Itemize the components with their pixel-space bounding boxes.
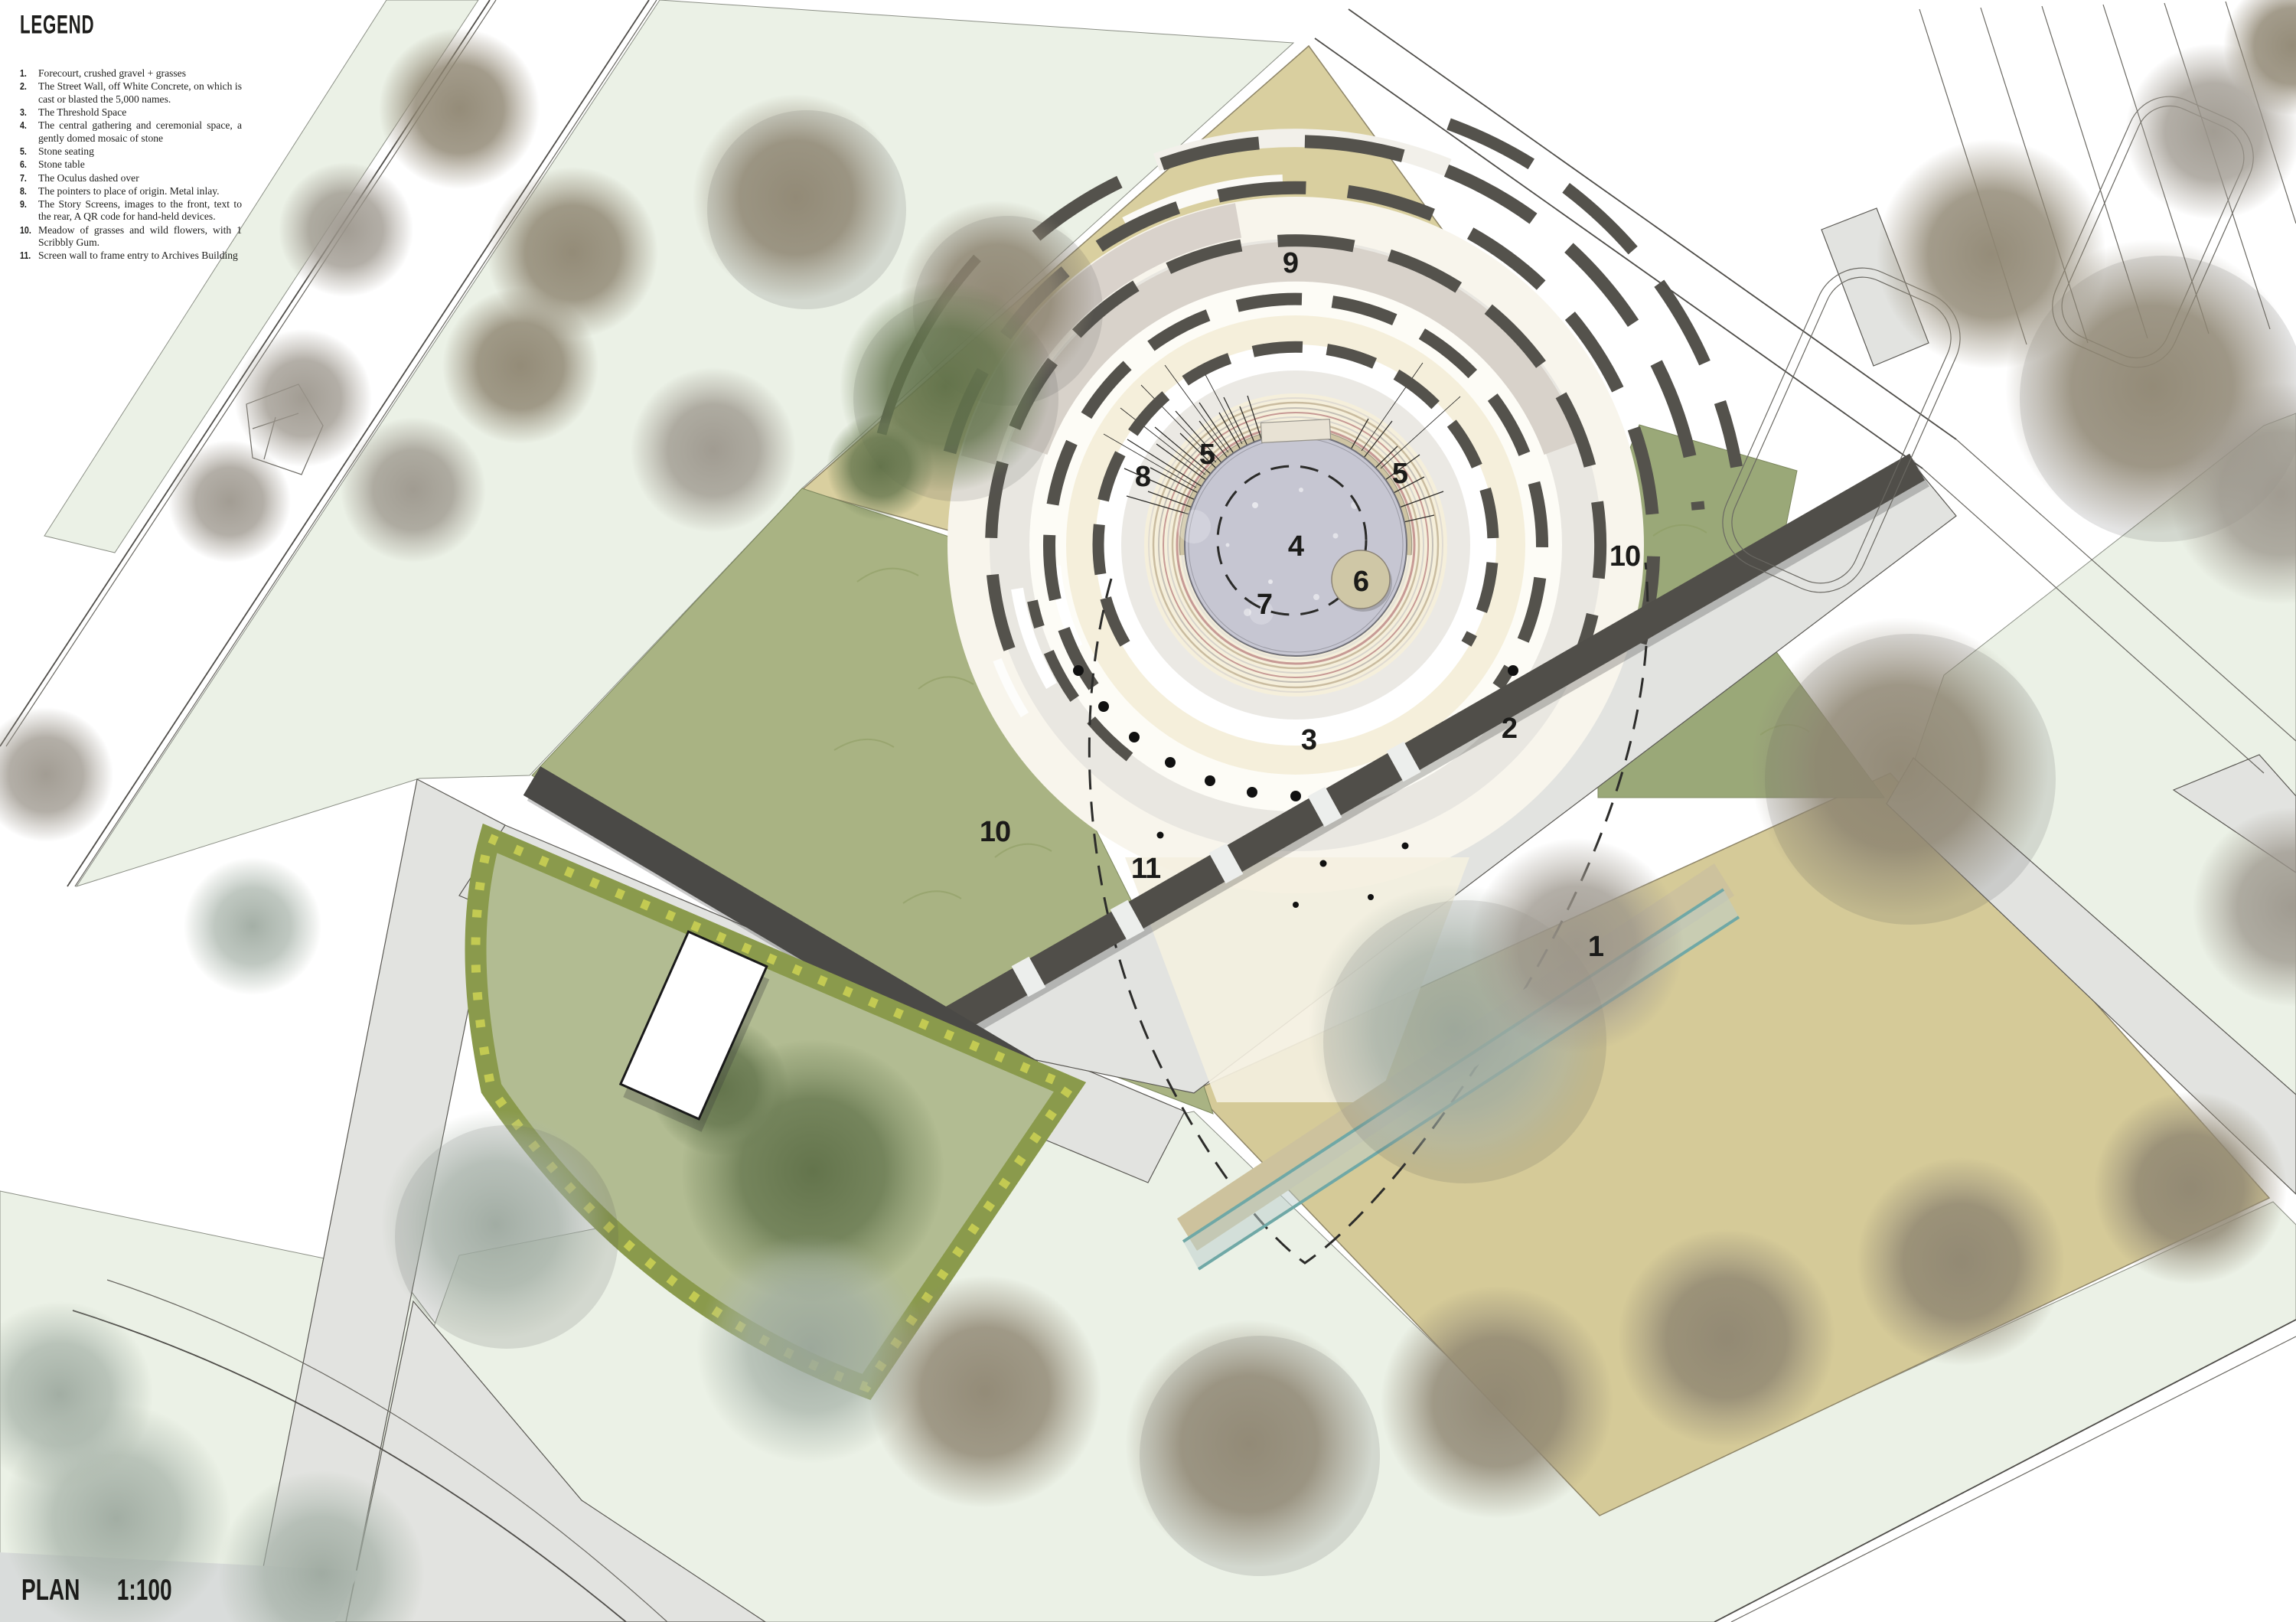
callout-7: 7	[1257, 589, 1272, 621]
callout-6: 6	[1353, 566, 1368, 598]
tree	[341, 417, 486, 563]
legend-title: LEGEND	[20, 9, 94, 40]
callout-4: 4	[1288, 530, 1304, 563]
plan-drawing: 9 8 5 5 4 6 7 3 2 10 11 1 10 LEGEND 1.Fo…	[0, 0, 2296, 1622]
tree	[1381, 1286, 1613, 1519]
threshold-top-block	[1261, 419, 1330, 443]
tree	[184, 857, 321, 995]
tree	[827, 413, 934, 521]
tree	[1750, 618, 2049, 916]
tree	[1877, 139, 2106, 369]
tree	[1618, 1229, 1835, 1447]
legend-panel: LEGEND 1.Forecourt, crushed gravel + gra…	[20, 9, 242, 377]
callout-10-left: 10	[980, 816, 1010, 848]
tree	[168, 440, 291, 563]
legend-list: 1.Forecourt, crushed gravel + grasses 2.…	[20, 67, 242, 263]
legend: LEGEND 1.Forecourt, crushed gravel + gra…	[20, 9, 242, 263]
legend-item: 4.The central gathering and ceremonial s…	[20, 119, 242, 145]
tree	[0, 707, 113, 842]
legend-item: 9.The Story Screens, images to the front…	[20, 198, 242, 224]
tree	[442, 288, 598, 444]
callout-5-left: 5	[1199, 439, 1215, 471]
tree	[631, 367, 796, 533]
tree	[279, 162, 413, 297]
callout-9: 9	[1283, 247, 1298, 279]
legend-item: 11.Screen wall to frame entry to Archive…	[20, 250, 242, 262]
legend-item: 6.Stone table	[20, 158, 242, 171]
site-plan-sheet: 9 8 5 5 4 6 7 3 2 10 11 1 10 LEGEND 1.Fo…	[0, 0, 2296, 1622]
legend-item: 8.The pointers to place of origin. Metal…	[20, 185, 242, 197]
legend-item: 10.Meadow of grasses and wild flowers, w…	[20, 224, 242, 250]
callout-10-right: 10	[1609, 540, 1640, 573]
legend-item: 2.The Street Wall, off White Concrete, o…	[20, 80, 242, 106]
tree	[381, 1110, 611, 1340]
tree	[1469, 838, 1684, 1053]
tree	[379, 28, 540, 189]
callout-3: 3	[1301, 724, 1316, 756]
plan-scale: 1:100	[117, 1574, 172, 1607]
legend-item: 7.The Oculus dashed over	[20, 172, 242, 184]
callout-2: 2	[1502, 713, 1517, 745]
callout-1: 1	[1588, 931, 1604, 963]
tree	[2094, 1092, 2287, 1284]
legend-item: 3.The Threshold Space	[20, 106, 242, 119]
tree	[693, 94, 899, 301]
tree	[869, 1275, 1101, 1508]
tree	[1857, 1157, 2065, 1366]
plan-title: PLAN	[21, 1574, 80, 1607]
tree	[1125, 1320, 1373, 1568]
callout-5-right: 5	[1392, 458, 1408, 490]
legend-item: 1.Forecourt, crushed gravel + grasses	[20, 67, 242, 80]
callout-11: 11	[1131, 853, 1161, 885]
legend-item: 5.Stone seating	[20, 145, 242, 158]
callout-8: 8	[1135, 461, 1150, 493]
